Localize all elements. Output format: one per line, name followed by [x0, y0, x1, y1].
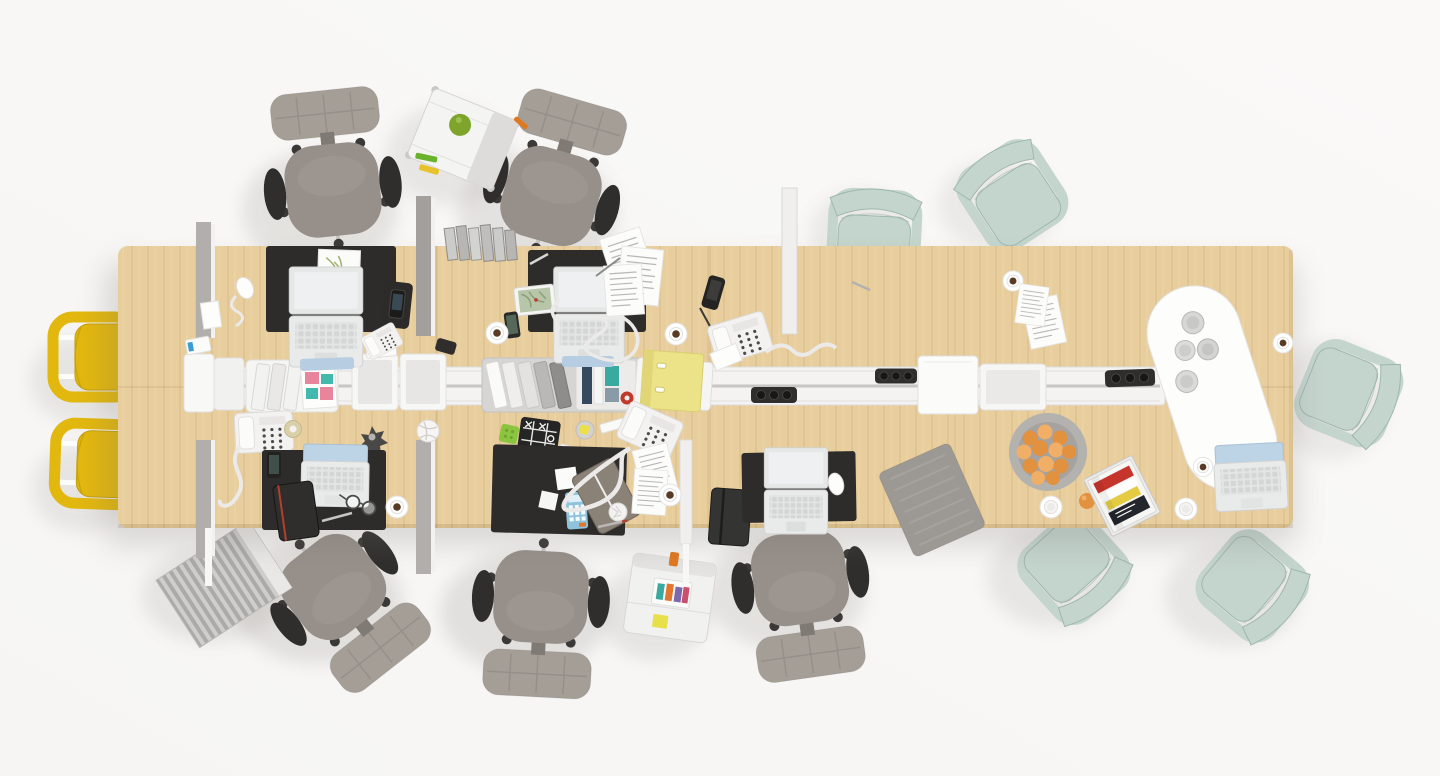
crumpled-paper	[609, 503, 627, 521]
black-notebook	[272, 480, 319, 541]
yellow-lever-arch-folder	[634, 350, 714, 413]
string-ball	[417, 420, 439, 442]
green-cube	[498, 423, 519, 444]
storage-box	[576, 360, 636, 410]
laptop	[764, 448, 827, 534]
smartphone	[267, 452, 281, 478]
binder-tray-center	[482, 358, 642, 412]
workstation-right	[1213, 442, 1288, 512]
workstation-bottom-right	[741, 448, 856, 534]
divider-leg	[205, 528, 212, 586]
empty-cup	[1040, 496, 1062, 518]
office-top-view-illustration	[0, 0, 1440, 776]
fruit-bowl	[1009, 413, 1087, 491]
power-module-3	[1105, 369, 1156, 388]
sticky-note	[538, 491, 558, 511]
office-scene	[0, 0, 1440, 776]
power-module-2	[875, 369, 917, 384]
power-module-1	[751, 387, 797, 403]
white-box-right-1	[918, 356, 978, 414]
espresso-cup	[1273, 333, 1293, 353]
empty-cup	[1175, 498, 1197, 520]
laptop-lip	[300, 357, 354, 371]
divider-leg	[683, 544, 689, 586]
tablet-with-map	[514, 284, 557, 316]
coffee-cup	[665, 323, 687, 345]
coffee-cup	[486, 322, 508, 344]
laptop	[289, 267, 362, 367]
coffee-cup	[659, 484, 681, 506]
yellow-sticky-pad	[652, 614, 669, 629]
phone-dock	[381, 281, 414, 330]
laptop	[1213, 442, 1288, 512]
colorful-papers	[301, 367, 338, 409]
envelope	[200, 301, 221, 329]
sticky-note-dispenser	[576, 421, 594, 439]
coffee-cup	[386, 496, 408, 518]
coffee-cup	[1193, 457, 1212, 476]
